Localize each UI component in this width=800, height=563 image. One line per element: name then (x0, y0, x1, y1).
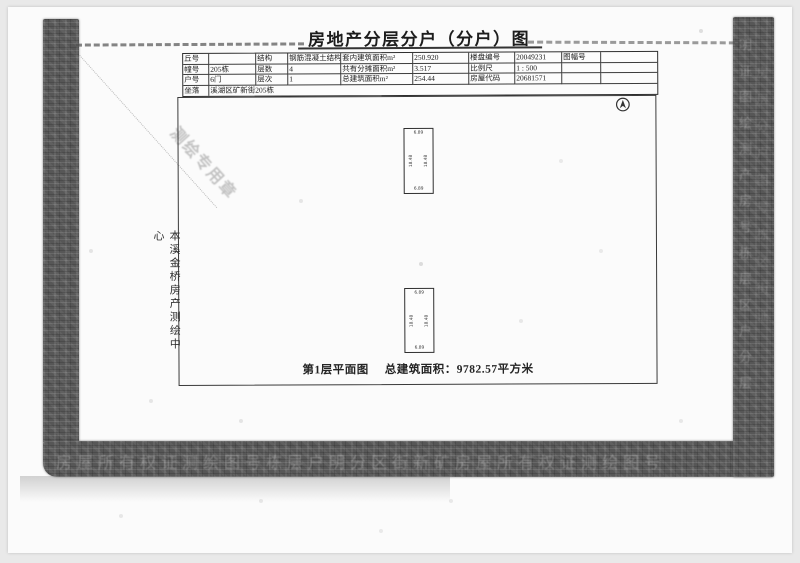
cell-shared-area-value: 3.517 (413, 63, 469, 74)
cell-empty-2 (601, 62, 657, 73)
cell-scale-value: 1 : 500 (515, 63, 562, 74)
cell-estate-no-value: 20049231 (515, 52, 562, 63)
floor-plan-unit-upper: 6.89 18.48 18.48 6.89 (403, 128, 433, 194)
dimension-label: 6.89 (409, 346, 429, 350)
cell-inner-area-label: 套内建筑面积m² (341, 53, 413, 64)
cell-house-code-value: 20681571 (515, 73, 562, 84)
scanned-page-background: 明证图绘测产房号栋层区户分层 房层分户图号栋区街证 房屋所有权证测绘图号栋层户明… (0, 0, 800, 563)
cell-empty-3 (562, 73, 601, 84)
cell-shared-area-label: 共有分摊面积m² (341, 63, 413, 74)
cell-empty-1 (562, 63, 601, 74)
cell-location-label: 坐落 (183, 85, 209, 96)
cell-storey-label: 层次 (256, 74, 288, 85)
cell-house-code-label: 房屋代码 (469, 73, 515, 84)
cell-inner-area-value: 250.920 (413, 53, 469, 64)
dimension-label: 6.89 (409, 187, 429, 191)
floor-plan-unit-lower: 6.89 18.48 18.48 6.89 (404, 288, 434, 353)
cell-structure-label: 结构 (256, 53, 288, 64)
cell-storeys-label: 层数 (256, 64, 288, 75)
plan-caption: 第1层平面图总建筑面积：9782.57平方米 (178, 360, 657, 378)
cell-unit-no-value: 6门 (209, 75, 256, 86)
cell-scale-label: 比例尺 (469, 63, 515, 74)
cell-building-no-label: 幢号 (183, 64, 209, 75)
cell-unit-no-label: 户号 (183, 75, 209, 86)
dimension-label: 18.48 (424, 155, 428, 167)
cell-sheet-no-value (601, 52, 657, 63)
property-info-table: 丘号 结构 钢筋混凝土结构 套内建筑面积m² 250.920 楼盘编号 2004… (182, 51, 658, 97)
dimension-label: 18.48 (410, 314, 414, 326)
surveying-agency-vertical-label: 本溪金桥房产测绘中心 (150, 230, 183, 362)
dimension-label: 6.89 (408, 131, 428, 135)
cell-plot-no-label: 丘号 (183, 54, 209, 65)
document-content: 房地产分层分户（分户）图 丘号 结构 钢筋混凝土结构 套内建筑面积m² 250.… (0, 0, 800, 563)
cell-building-no-value: 205栋 (209, 64, 256, 75)
cell-total-area-value: 254.44 (413, 74, 469, 85)
dimension-label: 18.48 (425, 314, 429, 326)
cell-sheet-no-label: 图幅号 (562, 52, 601, 63)
cell-estate-no-label: 楼盘编号 (469, 52, 515, 63)
cell-storey-value: 1 (288, 74, 341, 85)
cell-empty-4 (601, 73, 657, 84)
plan-caption-title: 第1层平面图 (302, 364, 368, 376)
north-arrow-icon (615, 97, 630, 112)
cell-location-value: 溪湖区矿新街205栋 (209, 83, 657, 95)
cell-structure-value: 钢筋混凝土结构 (288, 53, 341, 64)
plan-caption-area: 总建筑面积：9782.57平方米 (385, 363, 534, 376)
dimension-label: 6.89 (409, 291, 429, 295)
dimension-label: 18.48 (409, 155, 413, 167)
cell-total-area-label: 总建筑面积m² (341, 74, 413, 85)
cell-storeys-value: 4 (288, 64, 341, 75)
cell-plot-no-value (209, 54, 256, 65)
